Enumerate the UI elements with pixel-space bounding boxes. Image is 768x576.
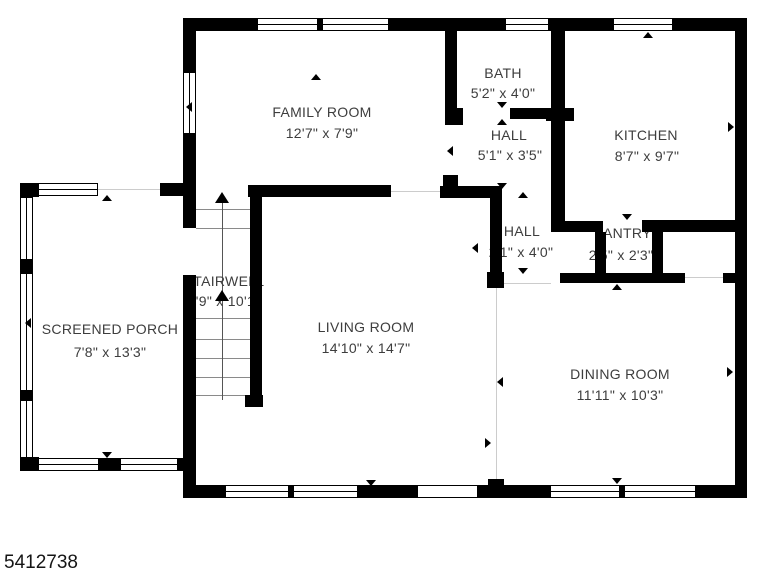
dimension-marker (728, 122, 734, 132)
wall-segment (245, 395, 263, 407)
window-mullion (317, 18, 323, 31)
room-boundary-line (502, 283, 551, 284)
floor-plan: FAMILY ROOM 12'7" x 7'9" BATH 5'2" x 4'0… (0, 0, 768, 576)
stair-tread (196, 377, 250, 378)
room-dims-living-room: 14'10" x 14'7" (322, 340, 411, 356)
dimension-marker (497, 377, 503, 387)
wall-segment (183, 18, 196, 72)
room-label-screened-porch: SCREENED PORCH (42, 321, 178, 337)
room-label-family-room: FAMILY ROOM (272, 104, 371, 120)
dimension-marker (612, 284, 622, 290)
dimension-marker (497, 102, 507, 108)
wall-segment (723, 273, 735, 283)
wall-segment (177, 458, 196, 471)
wall-segment (20, 457, 39, 471)
stair-direction-arrow (215, 290, 229, 301)
room-label-hall-upper: HALL (491, 127, 527, 143)
room-label-kitchen: KITCHEN (614, 127, 678, 143)
dimension-marker (448, 64, 454, 74)
dimension-marker (189, 435, 195, 445)
wall-segment (98, 458, 121, 471)
dimension-marker (518, 192, 528, 198)
wall-segment (183, 133, 196, 228)
wall-segment (487, 272, 504, 288)
wall-segment (160, 183, 184, 196)
dimension-marker (485, 438, 491, 448)
dimension-marker (102, 452, 112, 458)
stair-tread (196, 228, 250, 229)
wall-segment (388, 18, 506, 31)
stair-tread (196, 339, 250, 340)
dimension-marker (366, 480, 376, 486)
wall-segment (357, 485, 418, 498)
dimension-marker (472, 243, 478, 253)
listing-id-watermark: 5412738 (4, 552, 78, 574)
dimension-marker (612, 478, 622, 484)
wall-segment (250, 186, 262, 400)
window (20, 400, 33, 458)
dimension-marker (102, 195, 112, 201)
room-label-bath: BATH (484, 65, 522, 81)
wall-segment (551, 31, 565, 232)
window (20, 273, 33, 391)
window (505, 18, 549, 31)
window (38, 458, 99, 471)
dimension-marker (727, 367, 733, 377)
dimension-marker (622, 214, 632, 220)
wall-segment (546, 108, 574, 121)
window-mullion (619, 485, 625, 498)
window (20, 197, 33, 260)
wall-segment (20, 259, 33, 274)
window (417, 485, 478, 498)
dimension-marker (552, 64, 558, 74)
stair-tread (196, 318, 250, 319)
window (38, 183, 98, 196)
room-dims-family-room: 12'7" x 7'9" (286, 125, 359, 141)
window (257, 18, 389, 31)
dimension-marker (497, 119, 507, 125)
wall-segment (735, 18, 747, 498)
window (613, 18, 673, 31)
wall-segment (448, 108, 463, 119)
dimension-marker (311, 74, 321, 80)
stair-tread (196, 358, 250, 359)
room-boundary-line (390, 191, 443, 192)
dimension-marker (186, 102, 192, 112)
dimension-marker (183, 320, 189, 330)
room-dims-dining-room: 11'11" x 10'3" (577, 387, 664, 403)
stair-tread (196, 209, 250, 210)
stair-direction-arrow (215, 192, 229, 203)
window-mullion (288, 485, 294, 498)
dimension-marker (311, 186, 321, 192)
room-label-living-room: LIVING ROOM (318, 319, 415, 335)
room-dims-bath: 5'2" x 4'0" (471, 85, 536, 101)
wall-segment (551, 221, 603, 232)
window (120, 458, 178, 471)
dimension-marker (518, 268, 528, 274)
room-dims-screened-porch: 7'8" x 13'3" (74, 344, 147, 360)
wall-segment (695, 485, 747, 498)
dimension-marker (497, 183, 507, 189)
room-dims-kitchen: 8'7" x 9'7" (615, 148, 680, 164)
room-label-hall-lower: HALL (504, 223, 540, 239)
wall-segment (595, 232, 606, 274)
room-boundary-line (97, 189, 160, 190)
wall-segment (488, 479, 504, 487)
room-boundary-line (685, 277, 723, 278)
dimension-marker (447, 146, 453, 156)
dimension-marker (643, 32, 653, 38)
room-dims-hall-upper: 5'1" x 3'5" (478, 147, 543, 163)
stair-tread (196, 395, 250, 396)
room-label-dining-room: DINING ROOM (570, 366, 670, 382)
dimension-marker (556, 146, 562, 156)
wall-segment (548, 18, 614, 31)
wall-segment (20, 183, 39, 197)
wall-segment (560, 273, 685, 283)
wall-segment (652, 220, 663, 274)
dimension-marker (25, 318, 31, 328)
